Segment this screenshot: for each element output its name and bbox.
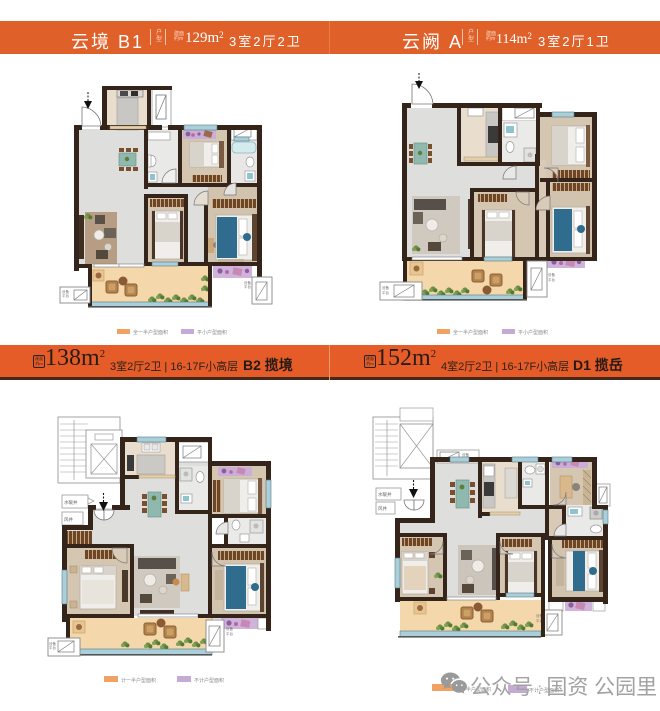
svg-text:平台: 平台 [49,645,56,650]
svg-text:平台: 平台 [382,290,390,295]
svg-text:平台: 平台 [226,631,233,636]
svg-text:风井: 风井 [378,505,387,512]
svg-text:平台: 平台 [62,293,69,298]
svg-text:平台: 平台 [244,284,251,289]
svg-text:设备: 设备 [382,285,390,290]
svg-text:设备: 设备 [548,272,556,277]
svg-text:风井: 风井 [64,516,73,523]
svg-text:水暖井: 水暖井 [64,499,78,506]
svg-text:水暖井: 水暖井 [378,491,392,498]
svg-text:平台: 平台 [548,277,556,282]
svg-text:设备: 设备 [226,626,233,631]
